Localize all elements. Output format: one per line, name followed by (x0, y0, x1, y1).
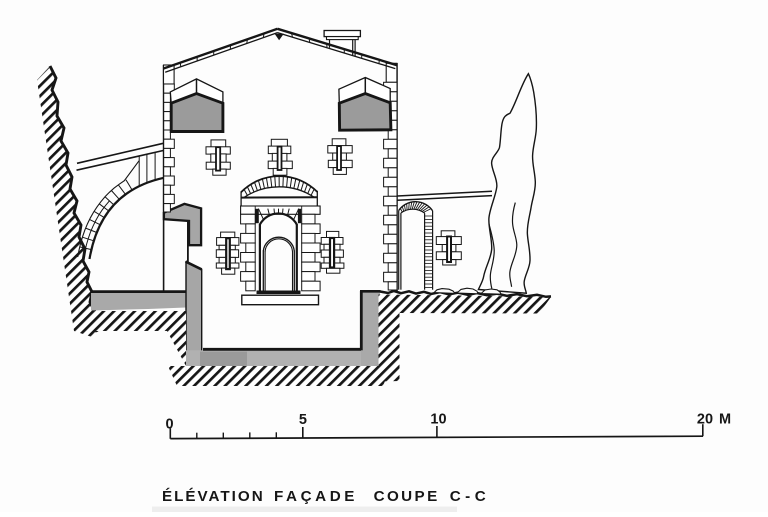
svg-text:ÉLÉVATION: ÉLÉVATION (162, 488, 265, 505)
svg-text:10: 10 (430, 412, 446, 428)
svg-text:0: 0 (165, 417, 173, 433)
svg-text:5: 5 (299, 412, 307, 428)
svg-text:FAÇADE: FAÇADE (274, 488, 358, 505)
svg-text:C-C: C-C (450, 488, 491, 505)
svg-text:COUPE: COUPE (374, 488, 440, 505)
